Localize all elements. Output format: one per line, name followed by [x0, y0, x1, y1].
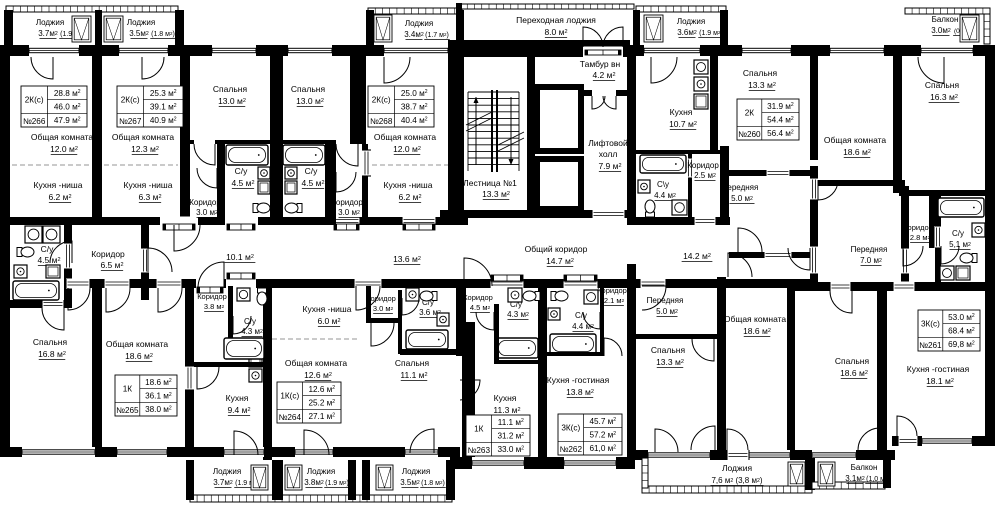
svg-text:1К(с): 1К(с) — [280, 392, 299, 401]
svg-text:25.0 м2: 25.0 м2 — [401, 89, 428, 98]
svg-text:1К: 1К — [123, 385, 133, 394]
svg-text:5.0 м2: 5.0 м2 — [656, 307, 678, 316]
svg-text:Коридор: Коридор — [687, 161, 719, 170]
svg-text:5,1 м2: 5,1 м2 — [949, 240, 971, 249]
svg-text:№260: №260 — [738, 130, 761, 139]
svg-text:69,8 м2: 69,8 м2 — [948, 340, 975, 349]
svg-text:Кухня -ниша: Кухня -ниша — [124, 180, 173, 190]
svg-text:Общая комната: Общая комната — [724, 314, 787, 324]
svg-text:36.1 м2: 36.1 м2 — [145, 392, 172, 401]
svg-text:12.0 м2: 12.0 м2 — [50, 144, 78, 154]
svg-text:С/у: С/у — [235, 166, 249, 176]
svg-text:10.7 м2: 10.7 м2 — [669, 119, 697, 129]
svg-text:28.8 м2: 28.8 м2 — [54, 89, 81, 98]
svg-text:С\у: С\у — [657, 180, 669, 189]
svg-text:Общая комната: Общая комната — [285, 358, 348, 368]
svg-text:13.6 м2: 13.6 м2 — [393, 254, 421, 264]
svg-text:31.2 м2: 31.2 м2 — [497, 432, 524, 441]
svg-text:16.8 м2: 16.8 м2 — [38, 349, 66, 359]
svg-text:25.3 м2: 25.3 м2 — [150, 89, 177, 98]
svg-text:2К(с): 2К(с) — [25, 96, 44, 105]
svg-text:№262: №262 — [560, 445, 583, 454]
svg-text:Кухня: Кухня — [670, 107, 693, 117]
svg-text:18.6 м2: 18.6 м2 — [743, 326, 771, 336]
svg-text:6.2 м2: 6.2 м2 — [48, 192, 71, 202]
svg-text:Спальня: Спальня — [33, 337, 68, 347]
svg-text:№266: №266 — [23, 117, 46, 126]
svg-text:Передняя: Передняя — [722, 183, 759, 192]
svg-text:40.9 м2: 40.9 м2 — [150, 116, 177, 125]
svg-text:№267: №267 — [119, 117, 142, 126]
svg-text:68.4 м2: 68.4 м2 — [948, 327, 975, 336]
svg-text:14.2 м2: 14.2 м2 — [683, 251, 711, 261]
svg-text:38.0 м2: 38.0 м2 — [145, 405, 172, 414]
svg-text:2.8 м2: 2.8 м2 — [910, 233, 931, 242]
svg-text:61,0 м2: 61,0 м2 — [589, 444, 616, 453]
svg-text:Спальня: Спальня — [213, 84, 248, 94]
svg-text:Переходная лоджия: Переходная лоджия — [516, 15, 596, 25]
svg-text:С/у: С/у — [575, 311, 587, 320]
svg-text:Спальня: Спальня — [835, 356, 870, 366]
svg-text:Кухня: Кухня — [226, 393, 249, 403]
svg-text:Кухня -ниша: Кухня -ниша — [384, 180, 433, 190]
svg-text:18.6 м2: 18.6 м2 — [125, 351, 153, 361]
svg-text:6.5 м2: 6.5 м2 — [100, 260, 123, 270]
svg-text:Кухня -гостиная: Кухня -гостиная — [907, 364, 970, 374]
svg-text:Лоджия: Лоджия — [677, 17, 705, 26]
svg-text:12.6 м2: 12.6 м2 — [304, 370, 332, 380]
svg-text:33.0 м2: 33.0 м2 — [497, 445, 524, 454]
svg-text:4.5 м2: 4.5 м2 — [470, 303, 491, 312]
svg-text:16.3 м2: 16.3 м2 — [930, 92, 958, 102]
svg-text:6.3 м2: 6.3 м2 — [138, 192, 161, 202]
svg-text:4.5 м2: 4.5 м2 — [37, 255, 60, 265]
svg-text:2.1 м2: 2.1 м2 — [604, 296, 625, 305]
svg-text:Лоджия: Лоджия — [307, 467, 335, 476]
svg-text:Спальня: Спальня — [925, 80, 960, 90]
svg-text:Кухня -гостиная: Кухня -гостиная — [547, 375, 610, 385]
svg-text:Коридор: Коридор — [189, 198, 221, 207]
svg-text:11.3 м2: 11.3 м2 — [493, 405, 520, 415]
svg-text:4.2 м2: 4.2 м2 — [592, 70, 615, 80]
svg-text:3К(с): 3К(с) — [921, 320, 940, 329]
svg-text:Общая комната: Общая комната — [106, 339, 169, 349]
svg-text:18.6 м2: 18.6 м2 — [840, 368, 868, 378]
svg-text:3К(с): 3К(с) — [561, 424, 580, 433]
svg-text:4.4 м2: 4.4 м2 — [654, 191, 676, 200]
svg-text:Коридор: Коридор — [91, 249, 125, 259]
svg-text:13.3 м2: 13.3 м2 — [748, 80, 776, 90]
svg-text:№263: №263 — [468, 446, 491, 455]
svg-text:Спальня: Спальня — [291, 84, 326, 94]
svg-text:6.2 м2: 6.2 м2 — [398, 192, 421, 202]
svg-text:Балкон: Балкон — [851, 463, 878, 472]
svg-text:Спальня: Спальня — [395, 358, 430, 368]
svg-text:2К(с): 2К(с) — [372, 96, 391, 105]
svg-text:Лоджия: Лоджия — [402, 467, 430, 476]
svg-text:Общая комната: Общая комната — [31, 132, 94, 142]
svg-text:13.3 м2: 13.3 м2 — [482, 189, 510, 199]
svg-text:13.8 м2: 13.8 м2 — [566, 387, 594, 397]
svg-text:Лоджия: Лоджия — [405, 19, 433, 28]
svg-text:Кухня -ниша: Кухня -ниша — [34, 180, 83, 190]
svg-text:54.4 м2: 54.4 м2 — [767, 116, 794, 125]
svg-text:Общая комната: Общая комната — [112, 132, 175, 142]
svg-text:45.7 м2: 45.7 м2 — [589, 417, 616, 426]
svg-text:Передняя: Передняя — [647, 296, 684, 305]
svg-text:11.1 м2: 11.1 м2 — [498, 418, 524, 427]
svg-text:№265: №265 — [116, 406, 139, 415]
svg-text:4.3 м2: 4.3 м2 — [507, 310, 529, 319]
svg-text:Спальня: Спальня — [651, 345, 686, 355]
svg-text:№264: №264 — [279, 413, 302, 422]
svg-text:3.0 м2: 3.0 м2 — [338, 208, 360, 217]
svg-text:8.0 м2: 8.0 м2 — [544, 27, 567, 37]
svg-text:6.0 м2: 6.0 м2 — [317, 316, 340, 326]
svg-text:Лестница №1: Лестница №1 — [463, 178, 517, 188]
svg-text:4.5 м2: 4.5 м2 — [231, 178, 254, 188]
svg-text:31.9 м2: 31.9 м2 — [767, 102, 794, 111]
svg-text:3.8 м2: 3.8 м2 — [204, 302, 225, 311]
svg-text:3.0 м2: 3.0 м2 — [373, 304, 394, 313]
svg-text:Лоджия: Лоджия — [127, 18, 155, 27]
svg-text:2.5 м2: 2.5 м2 — [694, 171, 716, 180]
svg-text:38.7 м2: 38.7 м2 — [401, 103, 428, 112]
svg-text:Коридор: Коридор — [366, 294, 396, 303]
svg-text:№268: №268 — [370, 117, 393, 126]
svg-text:14.7 м2: 14.7 м2 — [546, 256, 574, 266]
svg-text:46.0 м2: 46.0 м2 — [54, 103, 81, 112]
svg-text:56.4 м2: 56.4 м2 — [767, 129, 794, 138]
svg-text:47.9 м2: 47.9 м2 — [54, 116, 81, 125]
svg-text:Общий коридор: Общий коридор — [525, 244, 588, 254]
svg-text:Коридор: Коридор — [903, 223, 933, 232]
svg-text:18.6 м2: 18.6 м2 — [843, 147, 871, 157]
svg-text:Тамбур вн: Тамбур вн — [580, 59, 621, 69]
svg-text:Балкон: Балкон — [932, 15, 959, 24]
svg-text:12.3 м2: 12.3 м2 — [131, 144, 159, 154]
svg-text:2К(с): 2К(с) — [121, 96, 140, 105]
svg-text:Общая комната: Общая комната — [374, 132, 437, 142]
svg-text:Лоджия: Лоджия — [36, 18, 64, 27]
svg-text:40.4 м2: 40.4 м2 — [401, 116, 428, 125]
svg-text:18.1 м2: 18.1 м2 — [926, 376, 954, 386]
svg-text:3.0 м2: 3.0 м2 — [196, 208, 218, 217]
svg-text:Лоджия: Лоджия — [213, 467, 241, 476]
svg-text:Кухня -ниша: Кухня -ниша — [303, 304, 352, 314]
svg-text:9.4 м2: 9.4 м2 — [227, 405, 250, 415]
svg-text:7,6 м2 (3,8 м2): 7,6 м2 (3,8 м2) — [711, 476, 762, 485]
svg-text:Лифтовой: Лифтовой — [588, 138, 628, 148]
svg-text:С/у: С/у — [305, 166, 319, 176]
svg-text:13.0 м2: 13.0 м2 — [218, 96, 246, 106]
svg-text:7.9 м2: 7.9 м2 — [598, 161, 621, 171]
svg-text:53.0 м2: 53.0 м2 — [948, 313, 975, 322]
svg-text:№261: №261 — [919, 341, 942, 350]
svg-text:Кухня: Кухня — [494, 393, 517, 403]
svg-text:4.3 м2: 4.3 м2 — [241, 327, 263, 336]
svg-text:1К: 1К — [474, 425, 484, 434]
svg-text:Общая комната: Общая комната — [824, 135, 887, 145]
svg-text:7.0 м2: 7.0 м2 — [860, 256, 882, 265]
svg-text:Коридор: Коридор — [331, 198, 363, 207]
svg-text:Коридор: Коридор — [197, 292, 227, 301]
svg-text:10.1 м2: 10.1 м2 — [226, 252, 254, 262]
svg-text:18.6 м2: 18.6 м2 — [145, 378, 172, 387]
svg-text:4.5 м2: 4.5 м2 — [301, 178, 324, 188]
svg-text:13.3 м2: 13.3 м2 — [656, 357, 684, 367]
svg-text:Спальня: Спальня — [743, 68, 778, 78]
svg-text:11.1 м2: 11.1 м2 — [400, 370, 427, 380]
svg-text:13.0 м2: 13.0 м2 — [296, 96, 324, 106]
svg-text:2К: 2К — [745, 109, 755, 118]
svg-text:Лоджия: Лоджия — [722, 463, 753, 473]
svg-text:Передняя: Передняя — [851, 245, 888, 254]
svg-text:С/у: С/у — [952, 229, 964, 238]
svg-text:27.1 м2: 27.1 м2 — [308, 412, 335, 421]
svg-text:39.1 м2: 39.1 м2 — [150, 103, 177, 112]
svg-text:5.0 м2: 5.0 м2 — [731, 194, 753, 203]
svg-text:25.2 м2: 25.2 м2 — [308, 399, 335, 408]
svg-text:12.6 м2: 12.6 м2 — [308, 385, 335, 394]
svg-text:57.2 м2: 57.2 м2 — [589, 431, 616, 440]
svg-text:12.0 м2: 12.0 м2 — [393, 144, 421, 154]
svg-text:холл: холл — [599, 149, 618, 159]
svg-text:Коридор: Коридор — [463, 293, 493, 302]
